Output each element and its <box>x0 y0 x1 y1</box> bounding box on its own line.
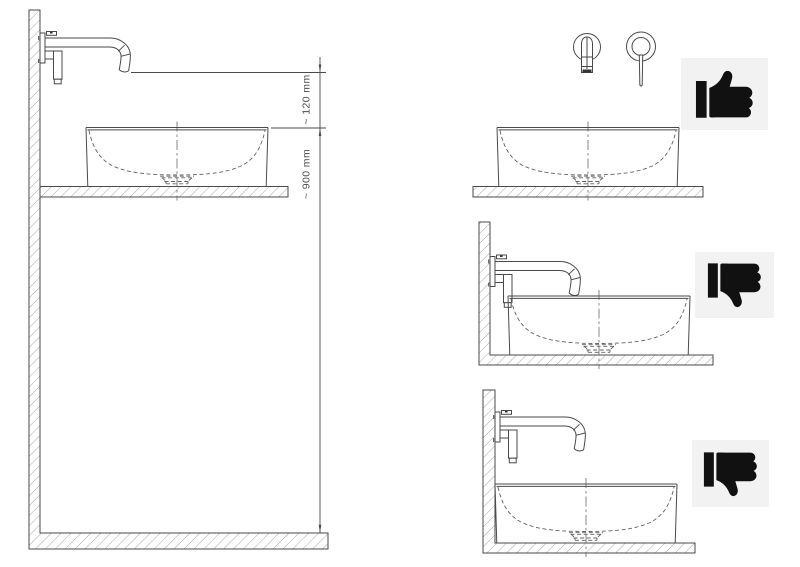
thumbs-up-icon <box>695 70 755 119</box>
mixer-handle-front-view-icon <box>627 32 656 86</box>
wall-and-floor-section <box>29 10 328 549</box>
dimension-arrow <box>319 525 322 533</box>
approved-badge <box>681 58 768 130</box>
installation-diagram-canvas: ~ 120 mm ~ 900 mm <box>0 0 800 567</box>
insufficient-clearance-panel <box>483 390 695 557</box>
countertop-section <box>40 187 288 198</box>
spout-front-view-icon <box>574 34 601 73</box>
thumbs-down-icon <box>703 451 759 497</box>
wall-mounted-faucet-drawing <box>489 255 581 307</box>
main-dimension-panel: ~ 120 mm ~ 900 mm <box>29 10 328 549</box>
rejected-badge <box>692 440 769 507</box>
thumbs-down-icon <box>707 262 763 308</box>
dimension-annotations: ~ 120 mm ~ 900 mm <box>131 57 326 533</box>
wall-mounted-faucet-drawing <box>39 32 131 84</box>
dimension-label-rim-height: ~ 900 mm <box>301 149 313 199</box>
dimension-label-spout-clearance: ~ 120 mm <box>301 74 313 124</box>
wall-mounted-faucet-drawing <box>494 411 586 463</box>
dimension-arrow <box>319 128 322 136</box>
spout-too-low-panel <box>479 222 713 369</box>
wall-and-floor-section <box>483 390 695 553</box>
dimension-arrow <box>319 65 322 73</box>
rejected-badge <box>695 252 774 318</box>
correct-installation-panel <box>473 32 703 201</box>
